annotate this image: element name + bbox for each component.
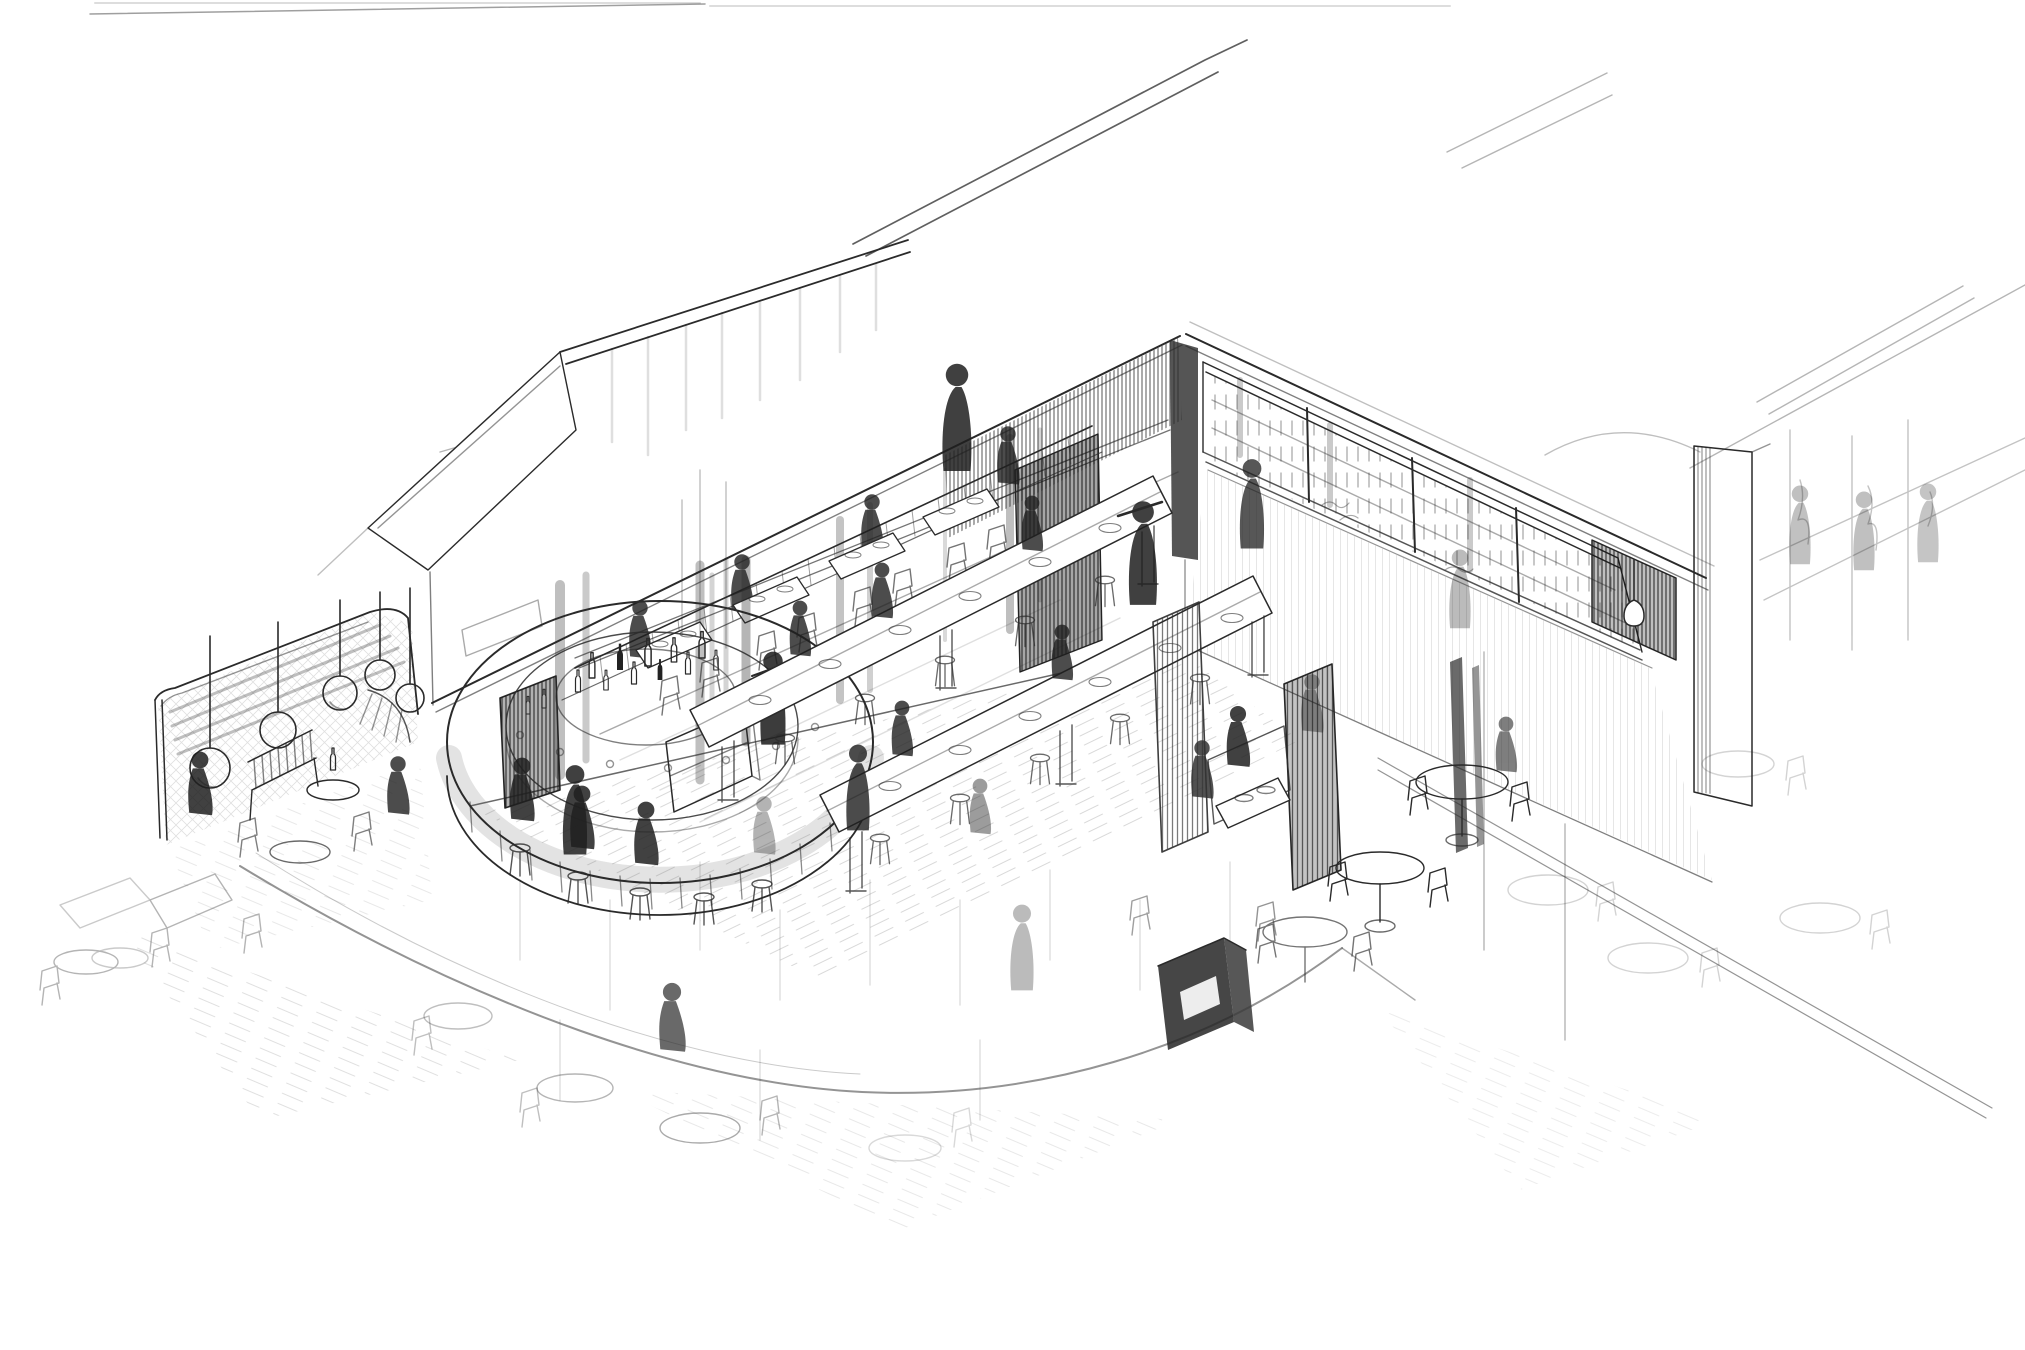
corner-post: [1170, 340, 1198, 560]
booth-partition: [1153, 602, 1208, 852]
restaurant-sketch: [0, 0, 2025, 1350]
seated-guest: [659, 983, 685, 1052]
sketch-canvas: Restaurant interior perspective sketch: [0, 0, 2025, 1350]
server-at-door: [942, 364, 971, 471]
walking-guest: [563, 765, 587, 854]
round-table: [1328, 852, 1448, 932]
round-table: [1256, 917, 1372, 982]
gable-wall: [318, 240, 910, 575]
booth-table: [1216, 778, 1290, 828]
roof-ridge: [560, 240, 910, 364]
host-podium: [1158, 938, 1254, 1050]
rooflines: [90, 3, 2025, 468]
